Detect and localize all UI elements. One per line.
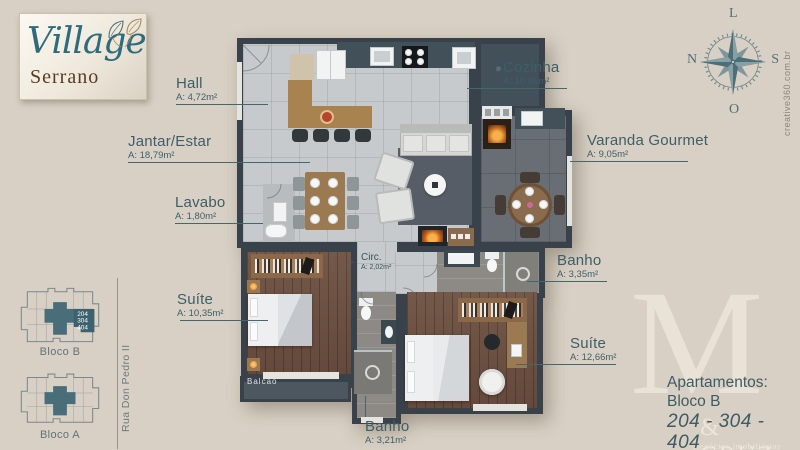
compass-letter-top: L	[729, 6, 738, 22]
cozinha-leader-line	[467, 88, 567, 89]
logo-village-serrano: Village Serrano	[19, 13, 147, 100]
lavabo-leader-line	[175, 223, 263, 224]
info-title: Apartamentos:	[667, 374, 800, 391]
street-name: Rua Don Pedro II	[120, 292, 132, 432]
compass-star-icon	[695, 24, 771, 100]
floor-plan-poster: M & CRUZ Negócios imobiliários Village S…	[0, 0, 800, 450]
info-block: Bloco B	[667, 393, 800, 410]
hall-label: HallA: 4,72m²	[176, 76, 217, 103]
banho-suite-leader-line	[365, 396, 366, 417]
compass-letter-bottom: O	[729, 102, 739, 118]
info-units: 204 - 304 - 404	[667, 412, 800, 450]
varanda-gourmet-label: Varanda GourmetA: 9,05m²	[587, 133, 708, 160]
suite2-label: SuíteA: 12,66m²	[570, 336, 616, 363]
lavabo-label: LavaboA: 1,80m²	[175, 195, 225, 222]
bloco-a-label: Bloco A	[17, 429, 103, 441]
bloco-b-label: Bloco B	[17, 346, 103, 358]
suite1-leader-line	[180, 320, 268, 321]
suite2-leader-line	[516, 364, 616, 365]
banho-social-label: BanhoA: 3,35m²	[557, 253, 601, 280]
svg-text:304: 304	[77, 318, 88, 325]
bloco-b-footprint: 204 304 404	[17, 283, 103, 347]
suite1-label: SuíteA: 10,35m²	[177, 292, 223, 319]
apartment-floor-plan	[237, 36, 573, 432]
svg-text:404: 404	[77, 325, 88, 332]
street-line	[117, 278, 118, 449]
apartment-info: Apartamentos: Bloco B 204 - 304 - 404 A:…	[667, 374, 800, 450]
svg-text:204: 204	[77, 311, 88, 318]
circ-label: Circ. A: 2,02m²	[361, 253, 391, 271]
cozinha-label: CozinhaA: 10,81m²	[503, 60, 559, 87]
leaf-icon	[105, 17, 145, 49]
jantar-estar-label: Jantar/EstarA: 18,79m²	[128, 134, 211, 161]
logo-subtitle: Serrano	[30, 66, 99, 89]
compass-letter-right: S	[771, 52, 779, 68]
bloco-a-footprint	[17, 370, 103, 428]
balcao-label: Balcão	[247, 377, 277, 386]
door-swings	[237, 36, 573, 432]
banho-suite-label: BanhoA: 3,21m²	[365, 419, 409, 446]
compass-rose: L N S O	[685, 6, 781, 118]
varanda-leader-line	[570, 161, 688, 162]
banho-social-leader-line	[527, 281, 607, 282]
hall-leader-line	[176, 104, 268, 105]
credit-text: creative360.com.br	[782, 16, 792, 136]
jantar-estar-leader-line	[128, 162, 310, 163]
